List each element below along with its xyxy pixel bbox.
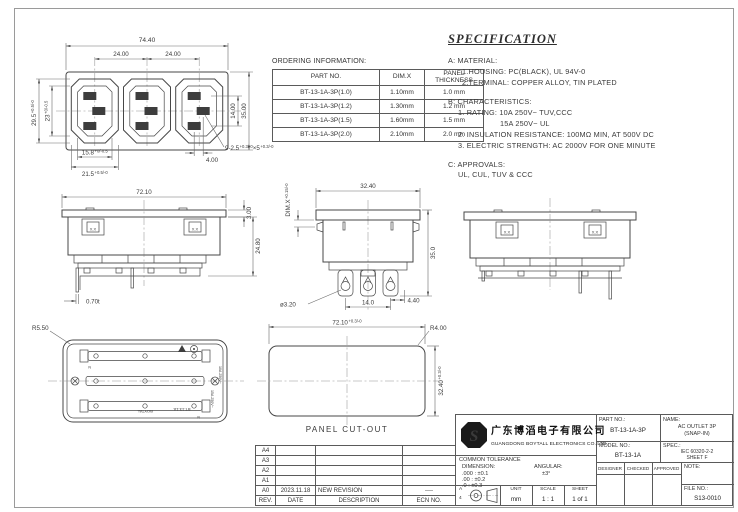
dim-x-label: DIM.X+0.15/-0 (284, 183, 292, 217)
side-view-body: X.X X.X (62, 200, 226, 292)
revision-table: A4 A3 A2 A1 A02023.11.18NEW REVISION----… (255, 445, 456, 506)
dim-total-height: 35.00 (241, 103, 248, 119)
neutral-mark: N (88, 365, 91, 369)
side-view-dimensions: 72.10 3.00 24.80 0.70t (62, 189, 262, 306)
revision-row: A3 (256, 456, 456, 466)
scale-label: SCALE (532, 487, 564, 492)
rear-view-drawing: X.X X.X (446, 186, 646, 308)
name-value-line2: (SNAP-IN) (660, 431, 734, 437)
angular-label: ANGULAR: (534, 464, 563, 470)
spec-rating: 1. RATING: 10A 250V~ TUV,CCC (448, 108, 736, 119)
note-label: NOTE: (684, 464, 700, 470)
spec-terminal: 2.TERMINAL: COPPER ALLOY, TIN PLATED (448, 78, 736, 89)
clip-mark: X.X (504, 230, 511, 235)
title-block: S 广东博滔电子有限公司 GUANGDONG BOYTALL ELECTRONI… (455, 414, 733, 506)
tolerance-title: COMMON TOLERANCE (459, 457, 521, 463)
company-name-en: GUANGDONG BOYTALL ELECTRONICS CO.,LTD (491, 442, 607, 447)
revision-header-row: REV.DATEDESCRIPTIONECN NO. (256, 496, 456, 506)
dim-width: 32.40 (360, 183, 376, 190)
model-marking: BT-13-1A (173, 407, 190, 412)
end-view-drawing: 32.40 DIM.X+0.15/-0 35.0 ø3.20 14.0 4.40 (266, 178, 446, 314)
designer-label: DESIGNER (596, 466, 624, 471)
dim-pin-offset: 4.40 (408, 298, 421, 305)
part-no-label: PART NO.: (599, 417, 625, 423)
file-no-value: S13-0010 (681, 495, 734, 502)
company-name-cn: 广东博滔电子有限公司 (491, 422, 606, 437)
cutout-label: PANEL CUT-OUT (306, 425, 389, 434)
spec-housing: 1.HOUSING: PC(BLACK), UL 94V-0 (448, 67, 736, 78)
spec-characteristics-head: B: CHARACTERISTICS: (448, 97, 736, 108)
file-no-label: FILE NO.: (684, 486, 708, 492)
warning-triangle-mark (178, 345, 186, 352)
sheet-label: SHEET (564, 487, 596, 492)
side-view-drawing: X.X X.X 72.10 3.00 24.80 0.70t (42, 186, 270, 314)
model-no-label: MODEL NO.: (599, 443, 631, 449)
scale-value: 1 : 1 (532, 496, 564, 503)
bottom-view-body: BOYTAL BT-13-1A 10A 250V~ 15A 250V~ N N (48, 340, 244, 422)
dim-height: 24.80 (255, 238, 262, 254)
dim-face-height: 29.5+0.5/-0 (30, 99, 38, 125)
sheet-size-letter: A (459, 487, 462, 492)
revision-row: A2 (256, 466, 456, 476)
col-part-no: PART NO. (273, 70, 380, 86)
unit-label: UNIT (500, 487, 532, 492)
brand-marking: BOYTAL (136, 409, 152, 414)
neutral-mark: N (197, 415, 200, 419)
spec-material-head: A: MATERIAL: (448, 56, 736, 67)
dim-face-width: 21.5+0.5/-0 (82, 170, 108, 178)
sheet-value: 1 of 1 (564, 496, 596, 503)
revision-row: A1 (256, 476, 456, 486)
projection-symbol (467, 487, 499, 506)
dim-height: 35.0 (430, 246, 437, 259)
snap-clip: X.X (184, 219, 206, 235)
dim-total-width: 74.40 (139, 37, 156, 44)
dim-cutout-height: 32.40+0.3/-0 (437, 366, 445, 396)
dim-pitch-right: 24.00 (165, 51, 181, 58)
cutout-body (257, 336, 439, 426)
col-dimx: DIM.X (380, 70, 425, 86)
name-value-line1: AC OUTLET 3P (660, 424, 734, 430)
part-no-value: BT-13-1A-3P (596, 427, 660, 434)
dim-pin-pitch: 14.0 (362, 300, 375, 307)
rating-marking-2: 15A 250V~ (210, 390, 214, 408)
dim-inner-height: 23+0/-0.5 (44, 100, 52, 121)
revision-row: A02023.11.18NEW REVISION---- (256, 486, 456, 496)
revision-row: A4 (256, 446, 456, 456)
checked-label: CHECKED (624, 466, 652, 471)
specification-block: SPECIFICATION A: MATERIAL: 1.HOUSING: PC… (448, 30, 736, 181)
spec-title: SPECIFICATION (448, 32, 557, 46)
bottom-view-dimensions: R5.50 (32, 325, 70, 344)
clip-mark: X.X (192, 227, 199, 232)
spec-value-line2: SHEET F (660, 455, 734, 461)
angular-value: ±3° (542, 471, 550, 477)
dim-slot-offset: 4.00 (206, 157, 219, 164)
sheet-size-number: 4 (459, 496, 462, 501)
name-label: NAME: (663, 417, 680, 423)
dim-width: 72.10 (136, 189, 152, 196)
panel-cutout-drawing: 72.10+0.3/-0 R4.00 32.40+0.3/-0 PANEL CU… (253, 316, 458, 438)
dim-corner-radius: R4.00 (430, 325, 447, 332)
spec-strength: 3. ELECTRIC STRENGTH: AC 2000V FOR ONE M… (448, 141, 736, 152)
model-no-value: BT-13-1A (596, 452, 660, 459)
dim-pin-diameter: ø3.20 (280, 302, 296, 309)
clip-mark: X.X (90, 227, 97, 232)
company-logo: S (460, 421, 488, 451)
approved-label: APPROVED (652, 466, 681, 471)
rear-view-body: X.X X.X (464, 198, 636, 299)
spec-approvals-head: C: APPROVALS: (448, 160, 736, 171)
clip-mark: X.X (592, 230, 599, 235)
snap-clip: X.X (496, 222, 518, 238)
spec-approvals: UL, CUL, TUV & CCC (448, 170, 736, 181)
snap-clip: X.X (82, 219, 104, 235)
rating-marking-1: 10A 250V~ (218, 366, 222, 384)
dim-pin-thickness: 0.70t (86, 299, 100, 306)
svg-text:S: S (470, 428, 479, 445)
cutout-dimensions: 72.10+0.3/-0 R4.00 32.40+0.3/-0 (269, 319, 447, 416)
unit-value: mm (500, 496, 532, 503)
dim-pitch-left: 24.00 (113, 51, 129, 58)
dim-cutout-width: 72.10+0.3/-0 (332, 319, 362, 327)
dim-inner-width: 15.8+0/-0.5 (82, 149, 108, 157)
slot-note: 9-2.5+0.3/-0×5+0.3/-0 (225, 144, 274, 152)
dim-corner-radius: R5.50 (32, 325, 49, 332)
spec-insulation: 2. INSULATION RESISTANCE: 100MΩ MIN, AT … (448, 130, 736, 141)
dim-slot-vertical: 14.00 (230, 103, 237, 119)
bottom-view-drawing: BOYTAL BT-13-1A 10A 250V~ 15A 250V~ N N … (30, 318, 258, 434)
snap-clip: X.X (584, 222, 606, 238)
spec-rating2: 15A 250V~ UL (448, 119, 736, 130)
dimension-label: DIMENSION: (462, 464, 495, 470)
